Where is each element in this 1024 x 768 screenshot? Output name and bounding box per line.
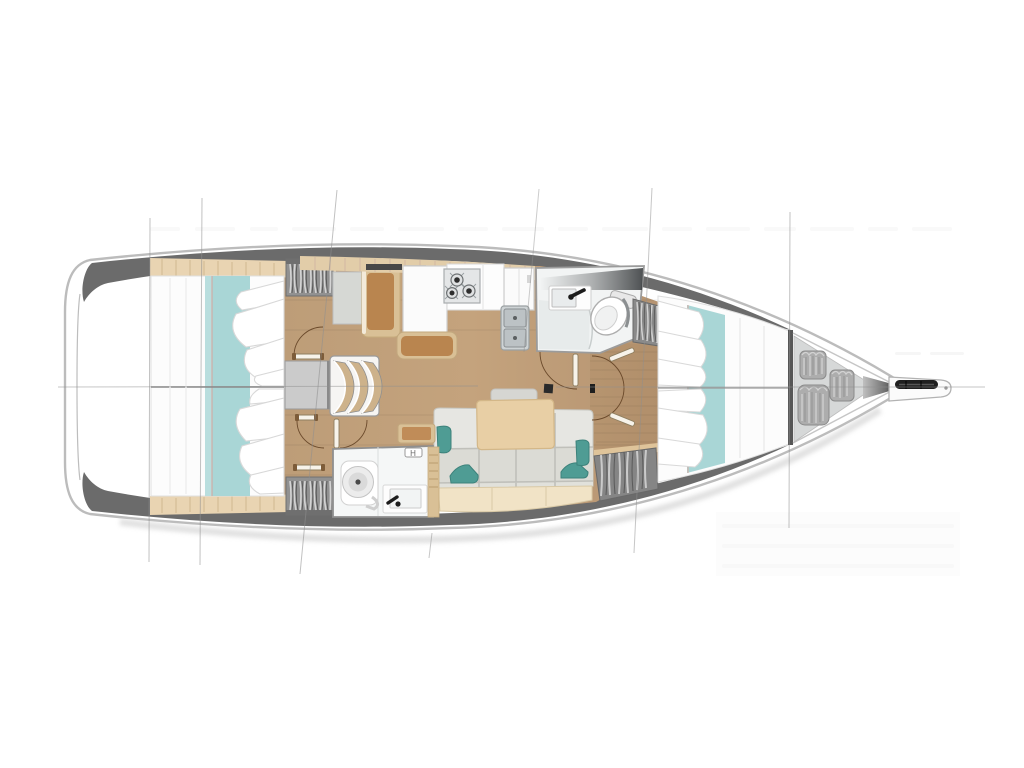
svg-text:H: H [410, 449, 416, 458]
